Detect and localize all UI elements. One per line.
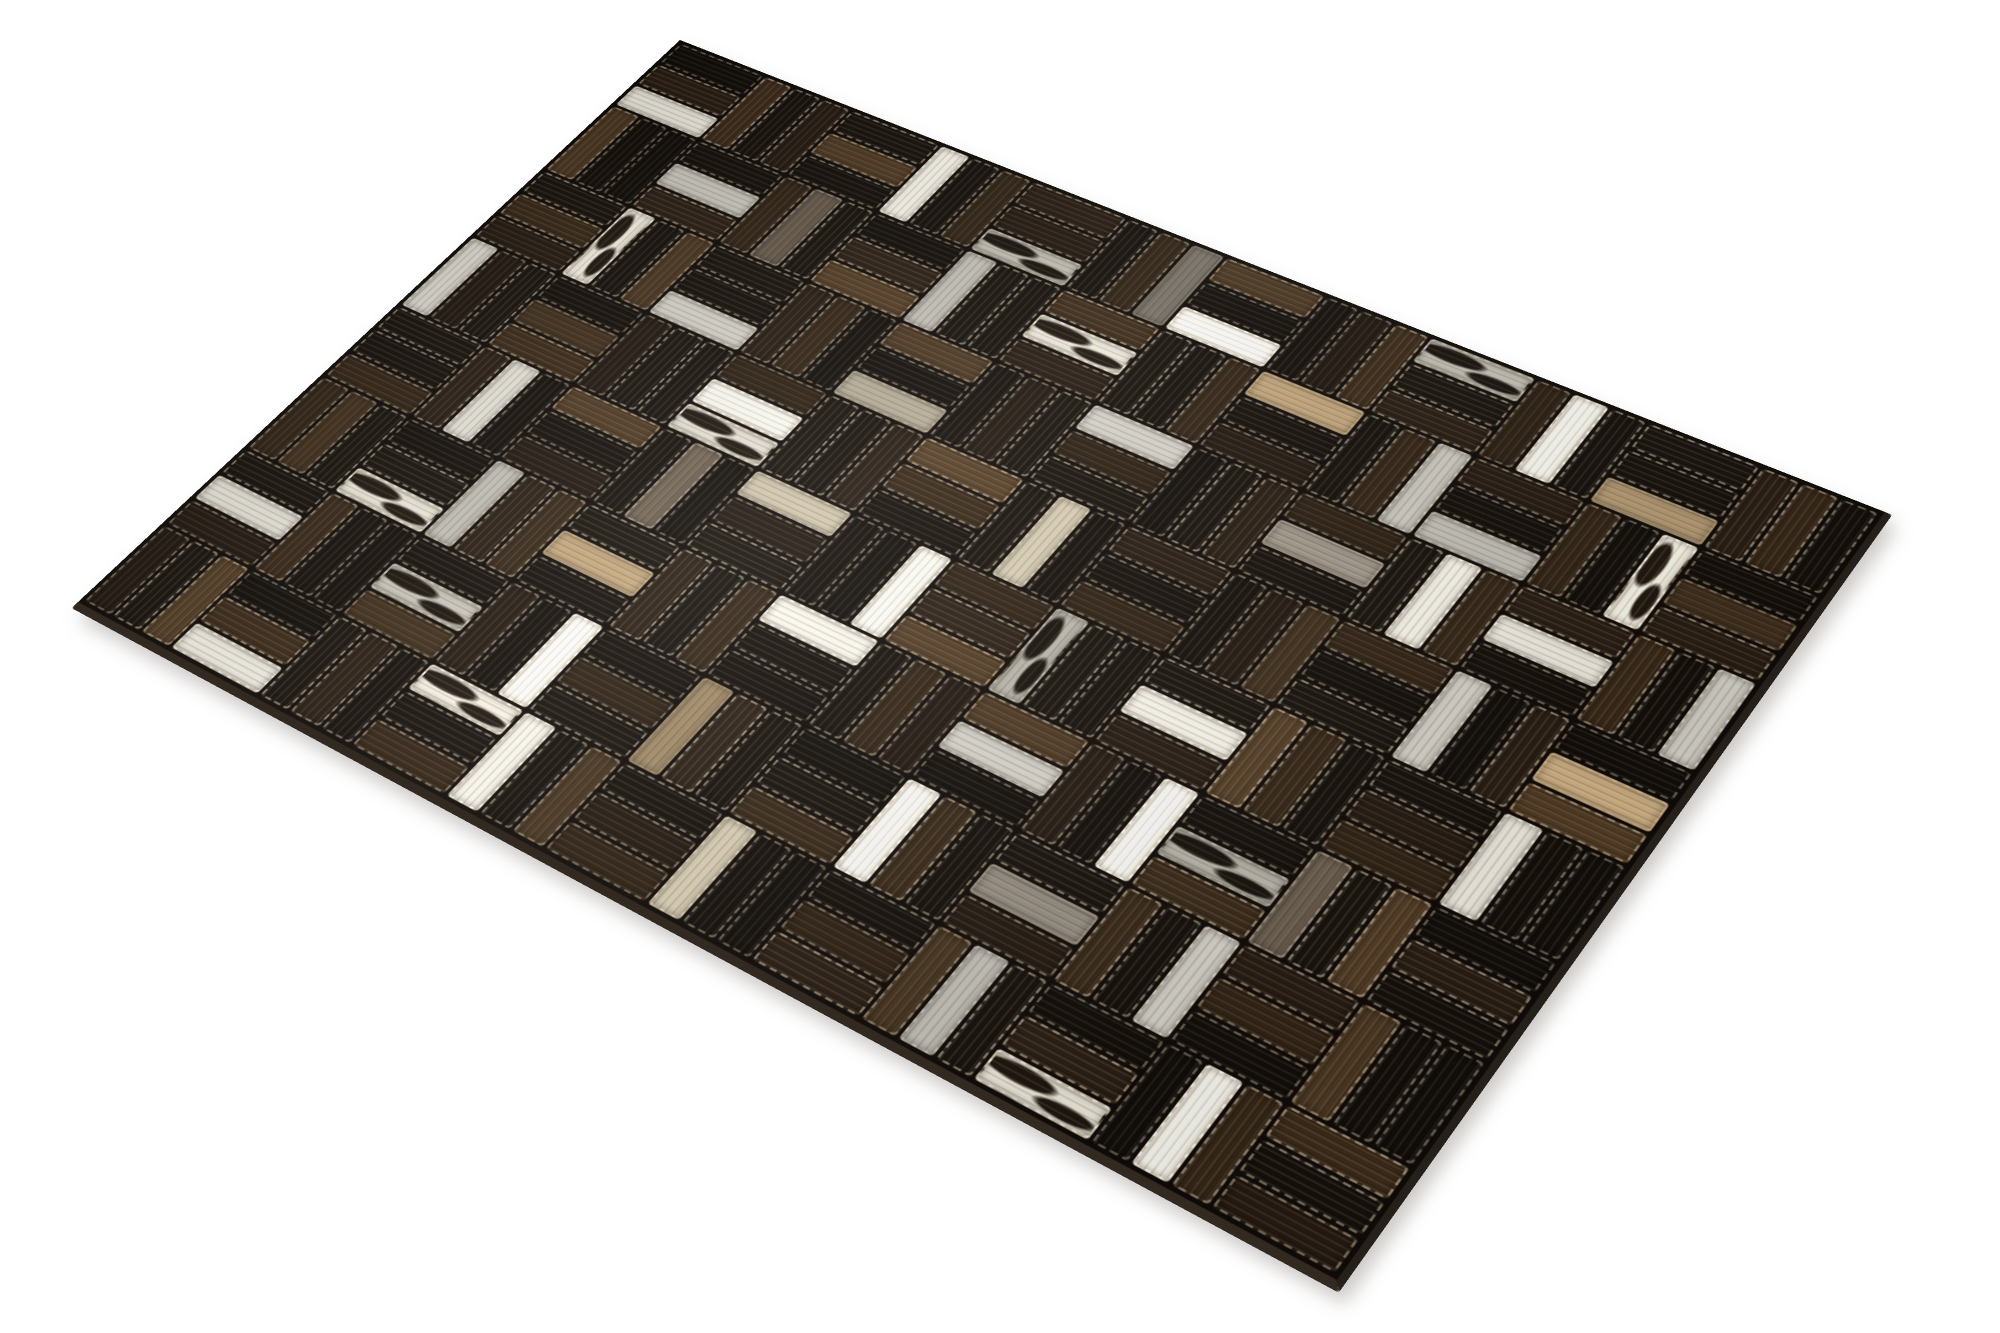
product-photo-stage <box>0 0 2000 1333</box>
rug-shadow-wrapper <box>0 0 2000 1333</box>
cowhide-patchwork-rug <box>72 40 1893 1293</box>
rug-surface <box>78 40 1885 1280</box>
